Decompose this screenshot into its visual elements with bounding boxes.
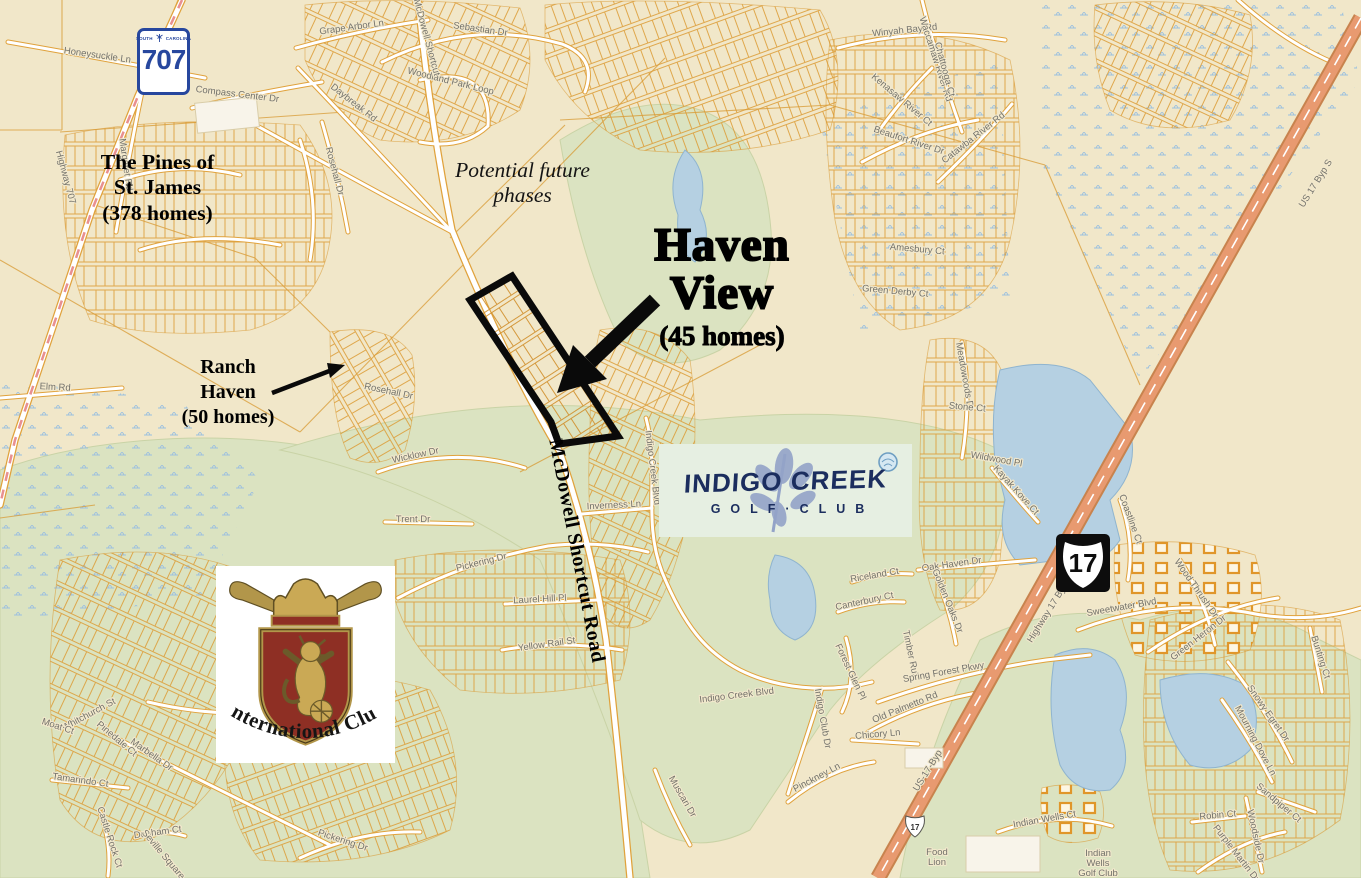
street-label: Elm Rd	[39, 381, 71, 394]
palmetto-icon	[155, 33, 164, 43]
haven-view-homes-count: (45 homes)	[600, 321, 844, 352]
us17-number: 17	[1069, 548, 1098, 578]
indigo-creek-logo: INDIGO CREEK GOLF·CLUB	[659, 444, 912, 537]
potential-future-phases-label: Potential future phases	[425, 158, 620, 209]
sc707-state-right: CAROLINA	[166, 36, 191, 41]
base-map: 17 Honeysuckle LnMargaret RdHighway 707G…	[0, 0, 1361, 878]
international-club-logo: International Club	[216, 566, 395, 763]
indigo-creek-subtitle: GOLF·CLUB	[673, 502, 912, 516]
ranch-haven-label: Ranch Haven (50 homes)	[148, 355, 308, 429]
pines-of-st-james-label: The Pines of St. James (378 homes)	[55, 150, 260, 226]
sc707-state-left: SOUTH	[136, 36, 153, 41]
street-label: Trent Dr	[396, 514, 430, 525]
haven-view-title: Haven View	[600, 222, 844, 318]
street-label: FoodLion	[926, 847, 948, 868]
haven-view-label-block: Haven View (45 homes)	[600, 222, 844, 352]
map-canvas[interactable]: 17 Honeysuckle LnMargaret RdHighway 707G…	[0, 0, 1361, 878]
indigo-creek-title: INDIGO CREEK	[659, 463, 912, 501]
sc-707-shield: SOUTH CAROLINA 707	[137, 28, 190, 95]
us-17-shield: 17	[1056, 534, 1110, 592]
svg-text:17: 17	[911, 823, 920, 832]
crest-crown-icon	[272, 579, 340, 626]
sc707-number: 707	[142, 46, 186, 74]
